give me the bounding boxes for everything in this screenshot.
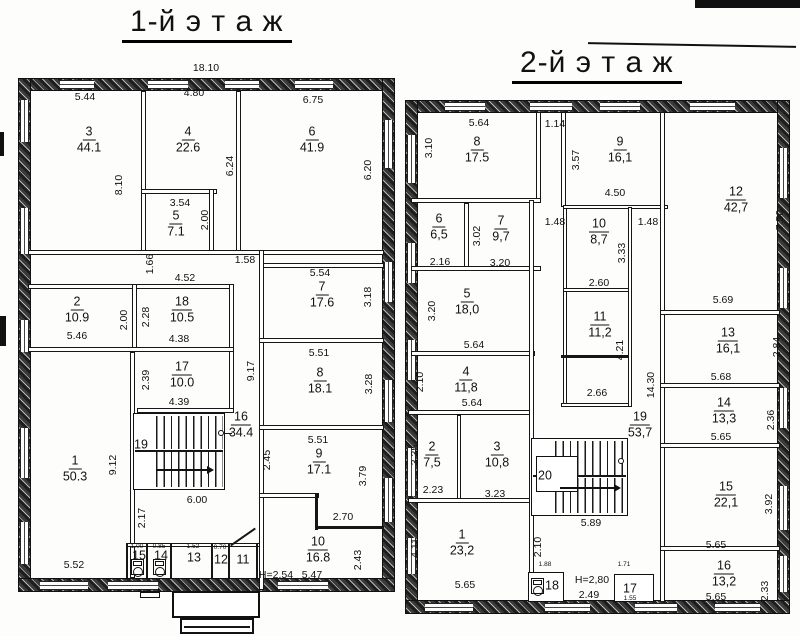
dim-label: 1.71 bbox=[618, 562, 631, 569]
room-number: 12 bbox=[726, 185, 746, 201]
dim-label: 1.48 bbox=[545, 217, 565, 228]
room-label-f1-7: 717.6 bbox=[310, 280, 334, 311]
door-opening bbox=[661, 400, 664, 414]
wall bbox=[28, 250, 384, 255]
window bbox=[20, 428, 29, 478]
dim-label: 2.60 bbox=[589, 278, 609, 289]
window bbox=[530, 102, 572, 111]
room-label-f2-15: 1522,1 bbox=[714, 480, 738, 511]
dim-label: 2.43 bbox=[353, 550, 364, 570]
wall bbox=[411, 198, 541, 203]
dim-label: 18.10 bbox=[193, 63, 219, 74]
dim-label: 0.70 bbox=[214, 545, 227, 552]
dim-label: 3.20 bbox=[427, 301, 438, 321]
room-number: 14 bbox=[714, 396, 734, 412]
dim-label: 2.39 bbox=[141, 370, 152, 390]
room-label-f2-7: 79,7 bbox=[492, 214, 509, 245]
dim-label: 4.38 bbox=[169, 334, 189, 345]
dim-label: 4.39 bbox=[169, 397, 189, 408]
room-area: 22.6 bbox=[176, 141, 200, 156]
dim-label: 5.64 bbox=[464, 340, 484, 351]
dim-label: 6.75 bbox=[303, 95, 323, 106]
room-area: 17.5 bbox=[465, 151, 489, 166]
room-number: 2 bbox=[71, 295, 84, 311]
door-opening bbox=[661, 330, 664, 346]
scan-artifact bbox=[0, 316, 6, 346]
window bbox=[108, 581, 158, 590]
room-number: 12 bbox=[214, 553, 228, 568]
window bbox=[779, 268, 788, 308]
room-label-f2-19: 1953,7 bbox=[628, 410, 652, 441]
dim-label: 1.14 bbox=[545, 119, 565, 130]
room-label-f2-9: 916,1 bbox=[608, 135, 632, 166]
room-label-f1-6: 641.9 bbox=[300, 125, 324, 156]
wall bbox=[464, 203, 469, 270]
wall bbox=[259, 338, 384, 343]
room-label-f2-18: 18 bbox=[545, 579, 559, 594]
wall bbox=[408, 410, 532, 415]
door-opening bbox=[661, 480, 664, 496]
room-number: 1 bbox=[69, 454, 82, 470]
window bbox=[600, 102, 640, 111]
wall bbox=[132, 284, 137, 352]
dim-label: 9.17 bbox=[246, 361, 257, 381]
room-area: 44.1 bbox=[77, 141, 101, 156]
window bbox=[779, 486, 788, 530]
dim-label: 2.00 bbox=[200, 210, 211, 230]
wall bbox=[563, 207, 567, 405]
dim-label: 0.85 bbox=[153, 544, 166, 551]
room-label-f2-1: 123,2 bbox=[450, 528, 474, 559]
dim-label: 5.44 bbox=[75, 92, 95, 103]
room-area: 16,1 bbox=[608, 151, 632, 166]
room-number: 9 bbox=[313, 447, 326, 463]
porch bbox=[172, 591, 260, 618]
wall bbox=[411, 351, 535, 356]
door-opening bbox=[530, 300, 533, 316]
wall bbox=[628, 207, 632, 407]
door-opening bbox=[90, 285, 108, 288]
dim-label: 3.35 bbox=[410, 445, 421, 465]
room-label-f1-10: 1016.8 bbox=[306, 535, 330, 566]
room-label-f2-5: 518,0 bbox=[455, 287, 479, 318]
wall bbox=[259, 493, 319, 498]
dim-label: 2.33 bbox=[760, 581, 771, 601]
dim-label: 3.54 bbox=[170, 198, 190, 209]
room-label-f2-6: 66,5 bbox=[430, 212, 447, 243]
dim-label: 3.79 bbox=[358, 466, 369, 486]
dim-label: 2.00 bbox=[119, 310, 130, 330]
room-area: 6,5 bbox=[430, 228, 447, 243]
window bbox=[384, 478, 393, 522]
room-label-f1-2: 210.9 bbox=[65, 295, 89, 326]
room-area: 10.0 bbox=[170, 376, 194, 391]
room-area: 13,3 bbox=[712, 412, 736, 427]
room-number: 19 bbox=[630, 410, 650, 426]
door-opening bbox=[260, 540, 263, 558]
scan-artifact bbox=[0, 132, 4, 156]
window bbox=[384, 120, 393, 168]
door-opening bbox=[455, 199, 473, 202]
window bbox=[635, 603, 677, 612]
room-number: 17 bbox=[172, 360, 192, 376]
door-opening bbox=[115, 251, 135, 254]
wall bbox=[256, 543, 258, 578]
room-label-f2-16: 1613,2 bbox=[712, 559, 736, 590]
room-area: 9,7 bbox=[492, 230, 509, 245]
window bbox=[779, 148, 788, 198]
room-number: 7 bbox=[495, 214, 508, 230]
wall bbox=[126, 543, 128, 578]
dim-label: 5.64 bbox=[462, 398, 482, 409]
wall bbox=[228, 543, 230, 578]
dim-label: 1.52 bbox=[187, 544, 200, 551]
room-area: 18,0 bbox=[455, 303, 479, 318]
room-area: 11,8 bbox=[454, 381, 477, 396]
stair-landing-line bbox=[135, 450, 223, 452]
room-number: 15 bbox=[132, 549, 146, 564]
wall bbox=[141, 91, 146, 251]
dim-label: 7.50 bbox=[775, 210, 786, 230]
room-label-f2-12: 1242,7 bbox=[724, 185, 748, 216]
room-label-f1-5: 57.1 bbox=[167, 209, 184, 240]
window bbox=[445, 102, 485, 111]
window bbox=[425, 603, 473, 612]
window bbox=[40, 581, 88, 590]
room-area: 7,5 bbox=[423, 456, 440, 471]
dim-label: 3.02 bbox=[472, 226, 483, 246]
room-label-f1-13: 13 bbox=[187, 551, 201, 566]
room-label-f1-17: 1710.0 bbox=[170, 360, 194, 391]
dim-label: 2.10 bbox=[533, 537, 544, 557]
dim-label: 5.68 bbox=[711, 372, 731, 383]
room-number: 9 bbox=[614, 135, 627, 151]
door-opening bbox=[661, 150, 664, 168]
wall bbox=[315, 526, 384, 529]
dim-label: 5.89 bbox=[581, 518, 601, 529]
room-area: 23,2 bbox=[450, 544, 474, 559]
wall bbox=[561, 403, 631, 407]
dim-label: 3.23 bbox=[485, 489, 505, 500]
window bbox=[225, 80, 259, 89]
dim-label: 3.33 bbox=[617, 243, 628, 263]
room-number: 11 bbox=[237, 553, 250, 568]
window bbox=[779, 388, 788, 428]
room-number: 15 bbox=[716, 480, 736, 496]
window bbox=[20, 522, 29, 564]
porch-step-line bbox=[184, 626, 250, 628]
wall bbox=[28, 284, 234, 289]
door-opening bbox=[131, 520, 134, 540]
wall bbox=[457, 415, 461, 502]
dim-label: 5.65 bbox=[706, 592, 726, 603]
dim-label: 4.50 bbox=[605, 188, 625, 199]
room-number: 8 bbox=[471, 135, 484, 151]
wall bbox=[660, 443, 780, 448]
dim-label: 4.21 bbox=[615, 340, 626, 360]
dim-label: 5.65 bbox=[455, 580, 475, 591]
room-label-f2-10: 108,7 bbox=[589, 217, 609, 248]
room-label-f1-12: 12 bbox=[214, 553, 228, 568]
room-area: 10.9 bbox=[65, 311, 89, 326]
room-number: 5 bbox=[170, 209, 183, 225]
room-number: 4 bbox=[182, 125, 195, 141]
room-label-f2-13: 1316,1 bbox=[716, 326, 740, 357]
door-opening bbox=[661, 560, 664, 574]
room-label-f1-1: 150.3 bbox=[63, 454, 87, 485]
dim-label: 3.28 bbox=[364, 374, 375, 394]
dim-label: 1.88 bbox=[539, 562, 552, 569]
wall bbox=[660, 383, 780, 388]
dim-label: 2.28 bbox=[141, 307, 152, 327]
dim-label: 5.47 bbox=[302, 570, 322, 581]
room-number: 6 bbox=[306, 125, 319, 141]
room-area: 16,1 bbox=[716, 342, 740, 357]
room-area: 22,1 bbox=[714, 496, 738, 511]
dim-label: 4.52 bbox=[175, 273, 195, 284]
room-label-f2-3: 310,8 bbox=[485, 440, 509, 471]
wall bbox=[660, 112, 665, 602]
room-number: 10 bbox=[308, 535, 328, 551]
room-area: 8,7 bbox=[589, 233, 609, 248]
window bbox=[690, 102, 735, 111]
dim-label: H=2,80 bbox=[575, 575, 609, 586]
dim-label: 1.48 bbox=[638, 217, 658, 228]
dim-label: 5.69 bbox=[713, 295, 733, 306]
wall bbox=[236, 91, 241, 253]
dim-label: 5.51 bbox=[309, 348, 329, 359]
wall bbox=[315, 493, 318, 530]
dim-label: 6.20 bbox=[363, 160, 374, 180]
room-number: 10 bbox=[589, 217, 609, 233]
window bbox=[384, 380, 393, 422]
door-opening bbox=[260, 300, 263, 318]
dim-label: 14.30 bbox=[646, 372, 657, 398]
porch-stub bbox=[140, 592, 160, 598]
dim-label: 2.23 bbox=[423, 485, 443, 496]
door-opening bbox=[530, 230, 533, 246]
floor1-title: 1-й э т а ж bbox=[122, 5, 292, 43]
room-label-f2-8: 817.5 bbox=[465, 135, 489, 166]
dim-label: 1.55 bbox=[624, 596, 637, 603]
room-number: 6 bbox=[433, 212, 446, 228]
room-area: 16.8 bbox=[306, 551, 330, 566]
room-area: 50.3 bbox=[63, 470, 87, 485]
door-opening bbox=[260, 360, 263, 378]
window bbox=[278, 581, 328, 590]
room-label-f1-3: 344.1 bbox=[77, 125, 101, 156]
room-area: 10.5 bbox=[170, 311, 194, 326]
room-label-f2-11: 1111,2 bbox=[588, 310, 611, 341]
dim-label: 1.66 bbox=[145, 254, 156, 274]
dim-label: 5.51 bbox=[308, 435, 328, 446]
room-number: 18 bbox=[172, 295, 192, 311]
room-label-f1-15: 15 bbox=[132, 549, 146, 564]
window bbox=[20, 208, 29, 254]
room-number: 20 bbox=[538, 469, 552, 484]
dim-label: 3.57 bbox=[571, 150, 582, 170]
window bbox=[20, 100, 29, 142]
room-label-f2-4: 411,8 bbox=[454, 365, 477, 396]
room-number: 16 bbox=[714, 559, 734, 575]
window bbox=[779, 556, 788, 592]
room-number: 11 bbox=[591, 310, 610, 326]
room-label-f1-9: 917.1 bbox=[307, 447, 331, 478]
room-number: 3 bbox=[491, 440, 504, 456]
stair-direction-arrow bbox=[156, 469, 208, 471]
room-area: 17.6 bbox=[310, 296, 334, 311]
wall bbox=[141, 189, 217, 194]
window bbox=[295, 80, 333, 89]
dim-label: 6.24 bbox=[225, 156, 236, 176]
wall bbox=[660, 310, 780, 315]
dim-label: 3.20 bbox=[490, 258, 510, 269]
room-area: 34.4 bbox=[229, 426, 253, 441]
dim-label: 3.18 bbox=[363, 287, 374, 307]
room-label-f1-14: 14 bbox=[154, 549, 168, 564]
dim-label: H=2,54 bbox=[259, 570, 293, 581]
dim-label: 3.92 bbox=[764, 494, 775, 514]
wall bbox=[536, 112, 541, 200]
room-area: 41.9 bbox=[300, 141, 324, 156]
stair-flight bbox=[150, 416, 223, 449]
room-label-f1-18: 1810.5 bbox=[170, 295, 194, 326]
window bbox=[148, 80, 188, 89]
dim-label: 5.54 bbox=[310, 268, 330, 279]
dim-label: 2.17 bbox=[137, 508, 148, 528]
room-area: 13,2 bbox=[712, 575, 736, 590]
dim-label: 2.70 bbox=[333, 512, 353, 523]
room-number: 4 bbox=[460, 365, 473, 381]
dim-label: 2.84 bbox=[772, 337, 783, 357]
dim-label: 2.66 bbox=[587, 388, 607, 399]
toilet-icon bbox=[531, 578, 544, 594]
room-label-f1-4: 422.6 bbox=[176, 125, 200, 156]
dim-label: 4.80 bbox=[184, 88, 204, 99]
room-area: 53,7 bbox=[628, 426, 652, 441]
dim-label: 1.00 bbox=[131, 544, 144, 551]
dim-label: 2.10 bbox=[415, 372, 426, 392]
window bbox=[60, 80, 94, 89]
room-number: 5 bbox=[461, 287, 474, 303]
dim-label: 5.46 bbox=[67, 331, 87, 342]
door-opening bbox=[470, 499, 486, 502]
room-area: 18.1 bbox=[308, 382, 332, 397]
window bbox=[407, 135, 416, 183]
scan-artifact bbox=[695, 0, 800, 8]
wall bbox=[259, 425, 384, 430]
floor2-title: 2-й э т а ж bbox=[512, 46, 682, 84]
window bbox=[715, 603, 760, 612]
room-label-f2-14: 1413,3 bbox=[712, 396, 736, 427]
level-marker bbox=[618, 458, 624, 464]
room-number: 7 bbox=[316, 280, 329, 296]
window bbox=[384, 262, 393, 302]
room-number: 2 bbox=[426, 440, 439, 456]
room-number: 16 bbox=[231, 410, 251, 426]
room-label-f2-20: 20 bbox=[538, 469, 552, 484]
wall bbox=[170, 543, 172, 578]
wall bbox=[146, 543, 148, 578]
room-label-f1-11: 11 bbox=[237, 553, 250, 568]
dim-label: 2.16 bbox=[430, 257, 450, 268]
room-area: 42,7 bbox=[724, 201, 748, 216]
room-label-f2-2: 27,5 bbox=[423, 440, 440, 471]
room-area: 10,8 bbox=[485, 456, 509, 471]
dim-label: 2.45 bbox=[262, 450, 273, 470]
dim-label: 8.10 bbox=[114, 175, 125, 195]
window bbox=[545, 603, 590, 612]
floorplan-scan: 1-й э т а ж 2-й э т а ж bbox=[0, 0, 800, 636]
dim-label: 9.12 bbox=[108, 455, 119, 475]
room-number: 13 bbox=[187, 551, 201, 566]
dim-label: 1.58 bbox=[235, 255, 255, 266]
room-number: 3 bbox=[83, 125, 96, 141]
room-label-f1-19: 19 bbox=[134, 438, 148, 453]
room-area: 17.1 bbox=[307, 463, 331, 478]
room-area: 11,2 bbox=[588, 326, 611, 341]
room-number: 19 bbox=[134, 438, 148, 453]
dim-label: 3.10 bbox=[424, 138, 435, 158]
dim-label: 5.65 bbox=[711, 432, 731, 443]
wall bbox=[563, 205, 668, 209]
dim-label: 5.52 bbox=[64, 560, 84, 571]
dim-label: 2.49 bbox=[579, 590, 599, 601]
stair-direction-arrow bbox=[560, 487, 615, 489]
room-label-f1-8: 818.1 bbox=[308, 366, 332, 397]
room-number: 13 bbox=[718, 326, 738, 342]
dim-label: 5.65 bbox=[706, 540, 726, 551]
room-number: 8 bbox=[314, 366, 327, 382]
dim-label: 2.36 bbox=[766, 410, 777, 430]
window bbox=[407, 243, 416, 283]
room-number: 18 bbox=[545, 579, 559, 594]
room-label-f1-16: 1634.4 bbox=[229, 410, 253, 441]
dim-label: 6.00 bbox=[187, 495, 207, 506]
room-area: 7.1 bbox=[167, 225, 184, 240]
room-number: 14 bbox=[154, 549, 168, 564]
dim-label: 5.64 bbox=[469, 118, 489, 129]
dim-label: 4.11 bbox=[410, 538, 421, 558]
room-number: 1 bbox=[456, 528, 469, 544]
